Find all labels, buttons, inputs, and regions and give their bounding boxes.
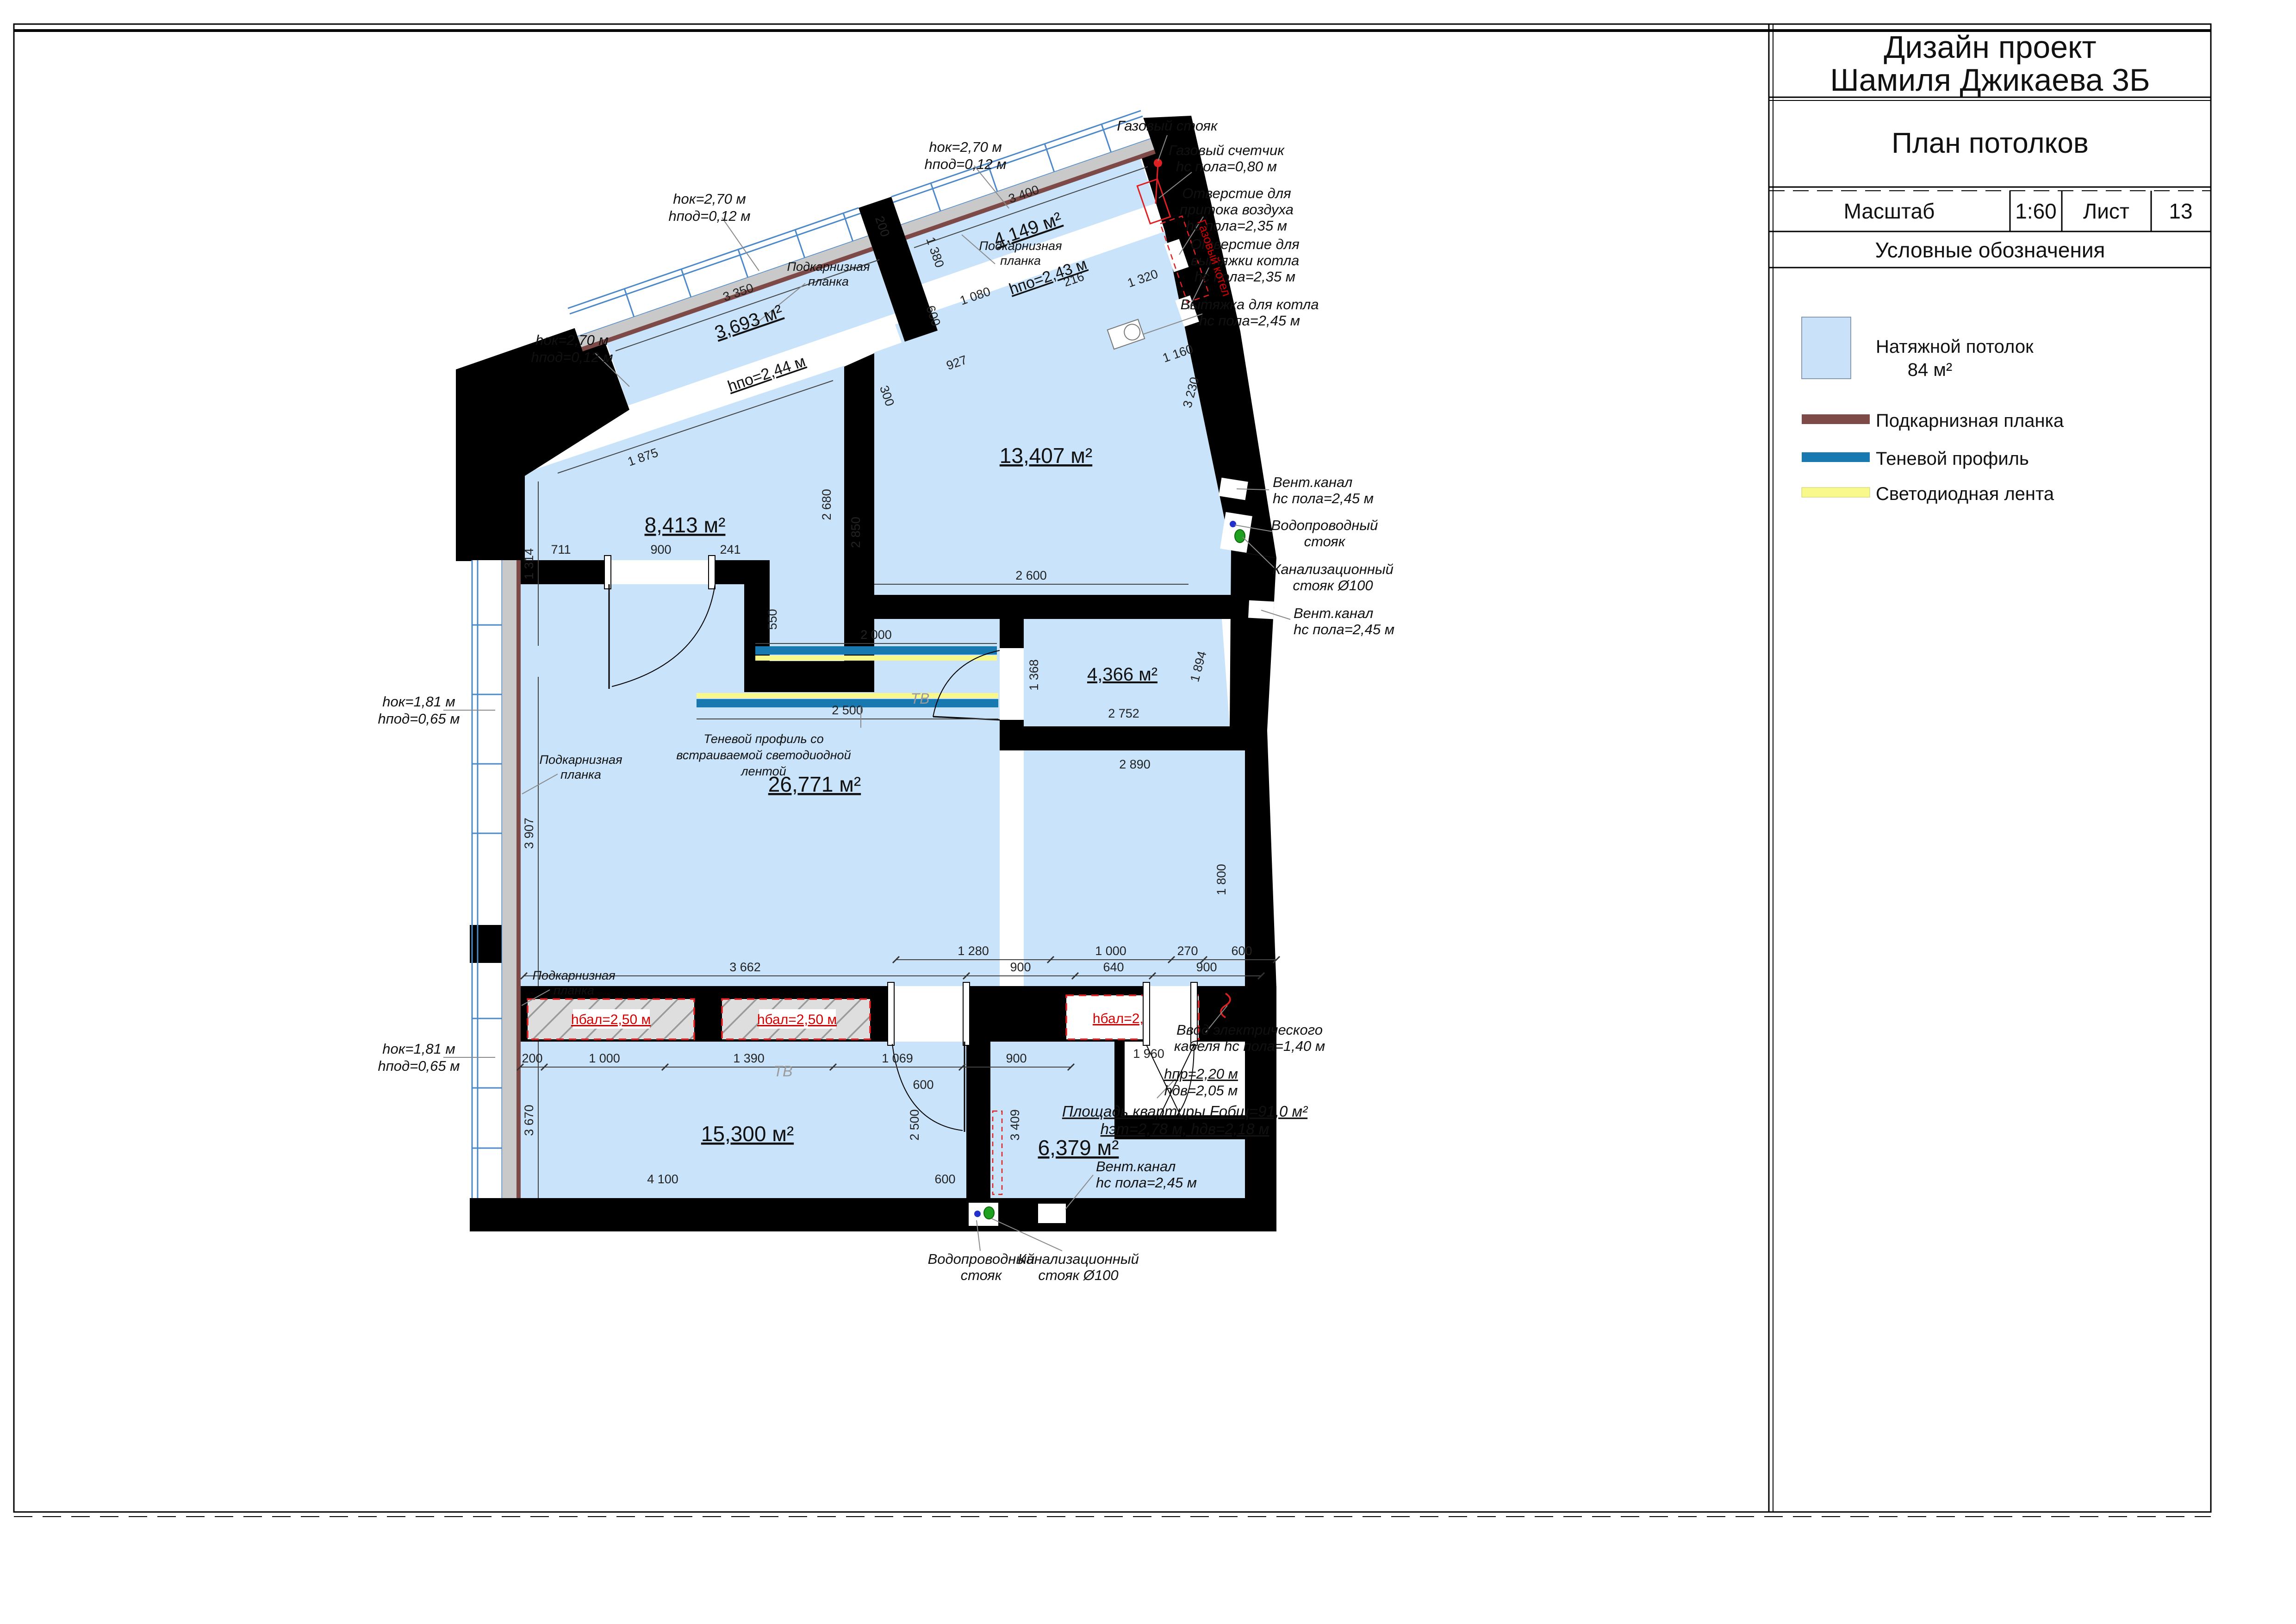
window-note-3: hок=2,70 м <box>929 139 1002 155</box>
dim: 2 500 <box>832 703 863 717</box>
tv-label-1: ТВ <box>911 690 930 707</box>
cornice-note-1: планка <box>808 275 849 288</box>
window-note-1: hок=2,70 м <box>535 332 608 348</box>
dim: 3 907 <box>522 818 536 849</box>
window-note-4: hпод=0,65 м <box>378 711 460 727</box>
dim: 900 <box>1006 1051 1027 1065</box>
cornice-note-4: планка <box>554 983 594 997</box>
legend-cornice-swatch <box>1802 414 1870 424</box>
room-label-26771: 26,771 м² <box>768 772 861 796</box>
dim: 900 <box>650 543 671 556</box>
ceiling-beams: hбал=2,50 м hбал=2,50 м hбал=2,50 м <box>528 995 1199 1039</box>
dim: 1 960 <box>1133 1047 1164 1061</box>
beam-label-1: hбал=2,50 м <box>571 1012 651 1027</box>
sewer-riser-dot-1 <box>1235 530 1245 543</box>
legend-ceiling-label: Натяжной потолок <box>1876 337 2034 357</box>
vent-note-2: hс пола=2,45 м <box>1294 621 1394 637</box>
dim: 2 000 <box>860 628 892 642</box>
dim: 2 680 <box>820 489 834 520</box>
dim: 2 752 <box>1108 706 1139 720</box>
water-riser-dot-1 <box>1230 521 1236 527</box>
shadow-profile-note: Теневой профиль со <box>703 732 823 746</box>
dim: 2 600 <box>1015 568 1047 582</box>
dim: 4 100 <box>647 1172 678 1186</box>
dim: 600 <box>1231 944 1252 958</box>
window-note-2: hпод=0,12 м <box>669 208 751 224</box>
window-note-4: hок=1,81 м <box>382 693 455 710</box>
cable-entry-note: кабеля hс пола=1,40 м <box>1174 1038 1325 1054</box>
dim: 3 670 <box>522 1105 536 1136</box>
air-inlet-note: притока воздуха <box>1180 201 1294 218</box>
cornice-note-2: планка <box>1000 254 1041 268</box>
water-riser-note-1: Водопроводный <box>1271 517 1378 533</box>
dim: 900 <box>1196 960 1217 974</box>
dim: 1 314 <box>522 548 536 580</box>
beam-label-2: hбал=2,50 м <box>757 1012 837 1027</box>
gas-meter-note: hс пола=0,80 м <box>1176 158 1277 175</box>
window-note-3: hпод=0,12 м <box>925 156 1007 172</box>
title-block: Дизайн проект Шамиля Джикаева 3Б План по… <box>1769 24 2211 1512</box>
vent-note-1: hс пола=2,45 м <box>1273 490 1374 506</box>
boiler-vent-note: hс пола=2,35 м <box>1195 269 1295 285</box>
dim: 711 <box>551 543 571 556</box>
gas-meter-note: Газовый счетчик <box>1169 142 1285 158</box>
sewer-riser-note-1: стояк Ø100 <box>1293 577 1373 593</box>
dim: 1 000 <box>1095 944 1126 958</box>
project-title-line1: Дизайн проект <box>1884 30 2096 65</box>
room-label-4366: 4,366 м² <box>1087 664 1157 685</box>
hall-area-4 <box>1024 750 1245 986</box>
shadow-profile-note: встраиваемой светодиодной <box>676 748 851 762</box>
dim: 1 800 <box>1214 864 1228 895</box>
dim: 1 000 <box>589 1051 620 1065</box>
dim: 550 <box>765 609 779 630</box>
dim: 900 <box>1010 960 1031 974</box>
dim: 3 409 <box>1008 1109 1022 1141</box>
dim: 1 368 <box>1027 659 1041 691</box>
dim: 600 <box>913 1078 933 1092</box>
scale-value: 1:60 <box>2015 199 2057 223</box>
legend-shadow-swatch <box>1802 452 1870 462</box>
water-riser-note-1: стояк <box>1304 533 1346 550</box>
dim: 2 500 <box>908 1109 921 1141</box>
dim: 2 850 <box>849 517 863 548</box>
drawing-sheet: Дизайн проект Шамиля Джикаева 3Б План по… <box>0 0 2296 1624</box>
sewer-riser-note-1: Канализационный <box>1272 561 1394 577</box>
window-note-2: hок=2,70 м <box>673 191 746 207</box>
apartment-area-note: Площадь квартиры Fобщ=91,0 м² <box>1062 1103 1308 1120</box>
boiler-hood-note: Вытяжка для котла <box>1181 296 1319 312</box>
air-inlet-note: Отверстие для <box>1182 185 1291 201</box>
legend-shadow-label: Теневой профиль <box>1876 449 2029 469</box>
dim: 241 <box>720 543 740 556</box>
cable-entry-note: Ввод электрического <box>1176 1022 1323 1038</box>
dim: 3 662 <box>729 960 761 974</box>
project-title-line2: Шамиля Джикаева 3Б <box>1830 62 2150 98</box>
legend: Натяжной потолок 84 м² Подкарнизная план… <box>1802 317 2064 504</box>
apartment-area-note: hэт=2,78 м, hдв=2,18 м <box>1101 1120 1269 1137</box>
cornice-note-3: Подкарнизная <box>539 753 622 767</box>
boiler-hood-note: hс пола=2,45 м <box>1199 312 1300 329</box>
dim: 640 <box>1103 960 1124 974</box>
window-note-5: hок=1,81 м <box>382 1041 455 1057</box>
scale-label: Масштаб <box>1844 199 1935 223</box>
cornice-note-1: Подкарнизная <box>787 260 870 274</box>
dim: 1 069 <box>882 1051 913 1065</box>
hall-area-1 <box>520 584 744 986</box>
vent-note-3: hс пола=2,45 м <box>1096 1174 1197 1191</box>
water-riser-dot-2 <box>974 1211 981 1217</box>
window-note-1: hпод=0,12 м <box>531 349 613 365</box>
tv-label-2: ТВ <box>774 1063 793 1080</box>
legend-title: Условные обозначения <box>1875 238 2105 262</box>
legend-ceiling-area: 84 м² <box>1908 360 1952 380</box>
sewer-riser-note-2: стояк Ø100 <box>1038 1267 1118 1283</box>
door-height-note: hпр=2,20 м <box>1164 1066 1238 1082</box>
room-label-8413: 8,413 м² <box>645 513 726 537</box>
dim: 200 <box>522 1051 542 1065</box>
gas-riser-note: Газовый стояк <box>1117 118 1218 134</box>
legend-led-label: Светодиодная лента <box>1876 484 2054 504</box>
legend-led-swatch <box>1802 487 1870 497</box>
room-label-13407: 13,407 м² <box>1000 443 1092 468</box>
vent-note-2: Вент.канал <box>1294 605 1373 621</box>
dim: 1 280 <box>958 944 989 958</box>
cornice-note-4: Подкарнизная <box>532 968 615 982</box>
room-label-6379: 6,379 м² <box>1038 1136 1119 1160</box>
sheet-number: 13 <box>2169 199 2192 223</box>
cornice-note-3: планка <box>560 768 601 781</box>
sewer-riser-dot-2 <box>984 1207 994 1219</box>
door-height-note: hдв=2,05 м <box>1164 1082 1238 1099</box>
sewer-riser-note-2: Канализационный <box>1018 1251 1139 1267</box>
legend-cornice-label: Подкарнизная планка <box>1876 411 2064 431</box>
window-note-5: hпод=0,65 м <box>378 1058 460 1074</box>
dim: 1 390 <box>733 1051 765 1065</box>
dim: 600 <box>934 1172 955 1186</box>
water-riser-note-2: стояк <box>961 1267 1002 1283</box>
sheet-label: Лист <box>2083 199 2129 223</box>
dim: 2 890 <box>1119 757 1151 771</box>
vent-note-3: Вент.канал <box>1096 1158 1176 1174</box>
dim: 270 <box>1177 944 1198 958</box>
vent-note-1: Вент.канал <box>1273 474 1352 490</box>
sheet-subtitle: План потолков <box>1892 127 2089 159</box>
legend-ceiling-swatch <box>1802 317 1851 379</box>
room-label-15300: 15,300 м² <box>701 1122 794 1146</box>
